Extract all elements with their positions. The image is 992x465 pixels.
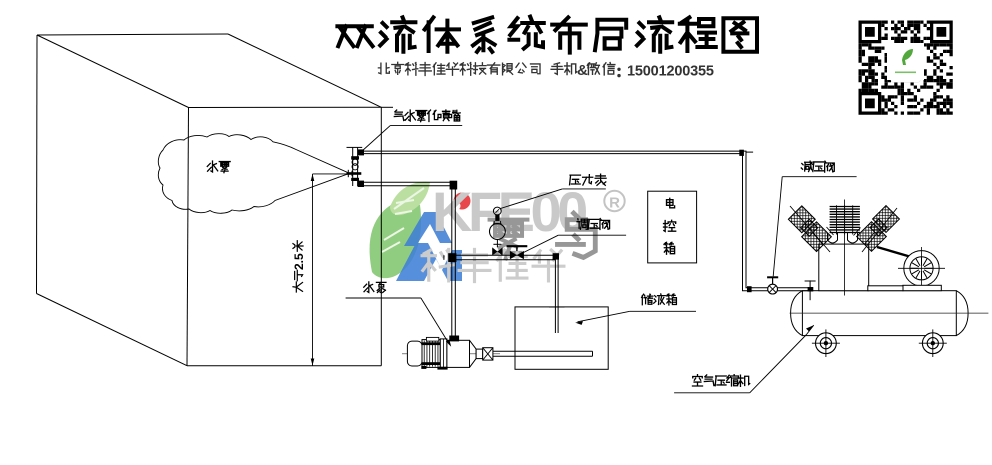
svg-text:2.5: 2.5 [292, 253, 306, 270]
svg-text:&: & [577, 62, 588, 79]
svg-text:R: R [609, 195, 620, 212]
svg-text:15001200355: 15001200355 [627, 64, 714, 80]
